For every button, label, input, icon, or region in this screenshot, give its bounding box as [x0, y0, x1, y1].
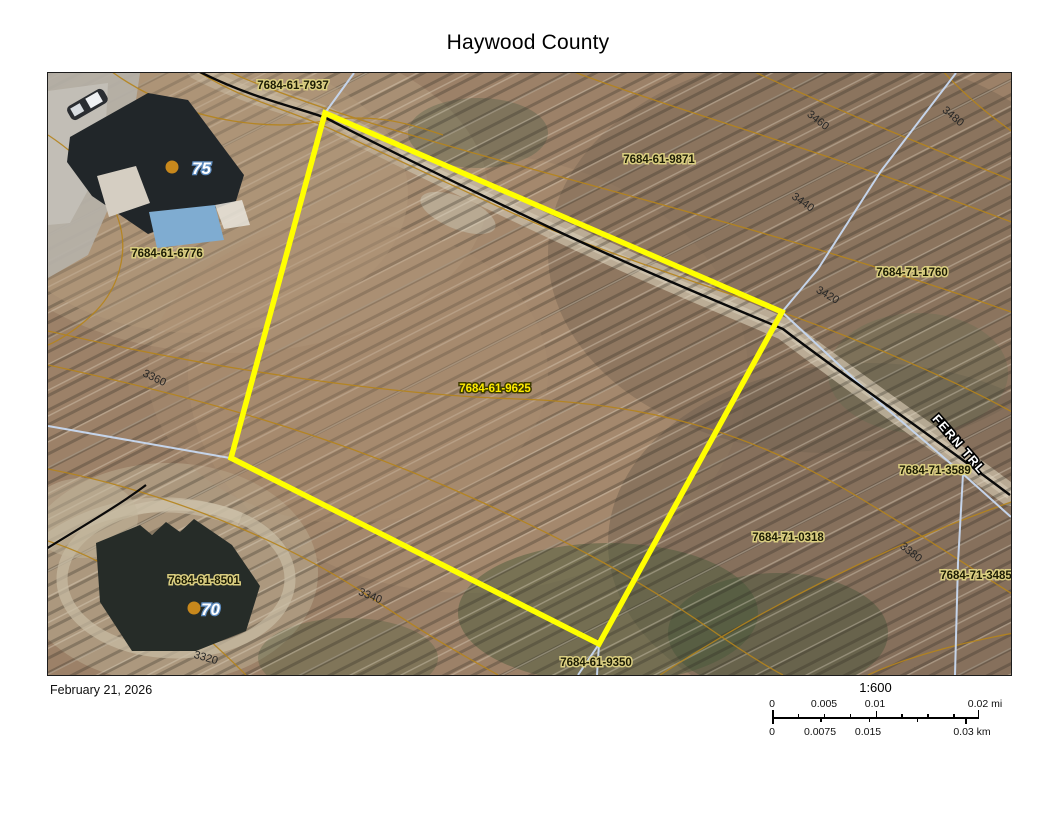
scalebar-tick	[978, 710, 980, 719]
scalebar-mi-01: 0.01	[865, 698, 885, 710]
map-area[interactable]: 75 70 3480 3460 3440 3420 3380 3360 3340…	[47, 72, 1012, 676]
scalebar-tick	[917, 717, 919, 722]
scalebar-km-0: 0	[769, 726, 775, 738]
scale-ratio: 1:600	[772, 680, 979, 695]
map-canvas: 75 70 3480 3460 3440 3420 3380 3360 3340…	[48, 73, 1011, 675]
address-label-70: 70	[201, 600, 220, 619]
address-dot-70	[188, 602, 201, 615]
parcel-label: 7684-61-6776	[131, 248, 203, 260]
scalebar-km-015: 0.015	[855, 726, 881, 738]
map-date: February 21, 2026	[50, 683, 152, 697]
scalebar-mi-02: 0.02 mi	[968, 698, 1002, 710]
parcel-label: 7684-61-9871	[623, 154, 695, 166]
parcel-label: 7684-71-1760	[876, 267, 948, 279]
parcel-label: 7684-71-3485	[940, 570, 1011, 582]
parcel-label: 7684-61-7937	[257, 80, 329, 92]
scalebar-tick	[876, 711, 878, 719]
address-dot-75	[166, 161, 179, 174]
scalebar-mi-0: 0	[769, 698, 775, 710]
scalebar-tick	[798, 714, 800, 719]
scalebar-km-0075: 0.0075	[804, 726, 836, 738]
scalebar-km-03: 0.03 km	[953, 726, 990, 738]
scalebar-tick	[820, 717, 822, 722]
scalebar-tick	[965, 717, 967, 724]
scalebar-mi-005: 0.005	[811, 698, 837, 710]
scalebar	[772, 717, 979, 719]
parcel-label: 7684-71-3589	[899, 465, 971, 477]
page-title: Haywood County	[0, 31, 1056, 55]
scalebar-tick	[953, 714, 955, 719]
parcel-label-selected: 7684-61-9625	[459, 383, 531, 395]
scalebar-tick	[850, 714, 852, 719]
parcel-label: 7684-61-9350	[560, 657, 632, 669]
scalebar-tick	[772, 717, 774, 724]
parcel-label: 7684-71-0318	[752, 532, 824, 544]
address-label-75: 75	[192, 159, 211, 178]
scalebar-tick	[901, 714, 903, 719]
scalebar-tick	[869, 717, 871, 722]
scalebar-tick	[824, 714, 826, 719]
parcel-label: 7684-61-8501	[168, 575, 240, 587]
scalebar-tick	[927, 714, 929, 719]
